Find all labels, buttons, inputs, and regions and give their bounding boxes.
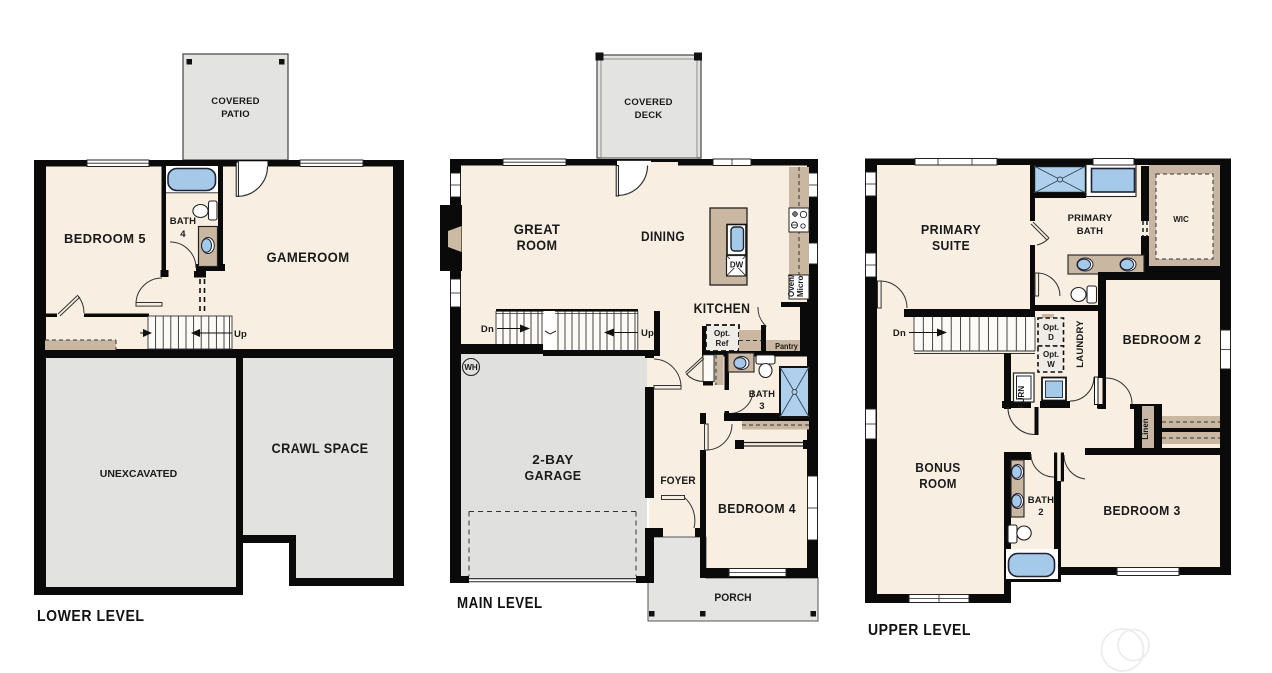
svg-text:BEDROOM 4: BEDROOM 4 [718,502,796,516]
svg-text:PORCH: PORCH [714,592,751,604]
svg-text:UNEXCAVATED: UNEXCAVATED [100,468,178,480]
svg-text:BONUS: BONUS [915,461,960,475]
svg-text:FOYER: FOYER [660,475,695,487]
svg-text:KITCHEN: KITCHEN [694,300,751,316]
svg-text:WIC: WIC [1173,215,1189,224]
svg-text:COVERED: COVERED [211,96,259,107]
svg-text:MAIN LEVEL: MAIN LEVEL [457,595,543,612]
svg-text:BEDROOM 5: BEDROOM 5 [64,232,146,246]
svg-text:BEDROOM 3: BEDROOM 3 [1103,504,1180,518]
svg-text:Oven/: Oven/ [787,274,796,297]
svg-text:LAUNDRY: LAUNDRY [1075,320,1086,368]
svg-text:BATH: BATH [1077,226,1103,237]
svg-text:DECK: DECK [635,110,663,121]
svg-text:SUITE: SUITE [932,239,970,253]
svg-text:DINING: DINING [641,228,685,244]
svg-text:GARAGE: GARAGE [525,469,582,483]
svg-text:BATH: BATH [170,216,196,227]
svg-text:Dn: Dn [893,328,906,339]
svg-text:UPPER LEVEL: UPPER LEVEL [868,622,971,639]
svg-text:ROOM: ROOM [919,477,957,491]
svg-text:4: 4 [180,229,186,240]
svg-text:LOWER LEVEL: LOWER LEVEL [37,608,145,625]
svg-text:BEDROOM 2: BEDROOM 2 [1123,333,1202,347]
svg-text:GREAT: GREAT [514,221,561,237]
svg-text:WH: WH [464,363,478,372]
svg-text:2: 2 [1038,507,1043,518]
svg-text:BATH: BATH [749,389,775,400]
svg-text:GAMEROOM: GAMEROOM [267,249,350,265]
svg-text:W: W [1047,360,1055,369]
svg-text:Ref: Ref [716,339,729,348]
svg-text:DW: DW [730,261,744,270]
svg-text:Up: Up [234,329,247,340]
svg-text:3: 3 [759,401,764,412]
svg-text:2-BAY: 2-BAY [532,453,574,467]
svg-text:COVERED: COVERED [624,97,672,108]
svg-text:D: D [1048,333,1054,342]
svg-text:FURN: FURN [1017,386,1026,408]
svg-text:PRIMARY: PRIMARY [1068,213,1113,224]
svg-text:ROOM: ROOM [517,237,558,253]
svg-text:PATIO: PATIO [221,109,250,120]
svg-text:Dn: Dn [481,324,494,335]
svg-text:Up: Up [641,328,654,339]
svg-text:Opt.: Opt. [714,329,730,338]
svg-text:BATH: BATH [1028,495,1054,506]
svg-text:Opt.: Opt. [1043,350,1059,359]
svg-text:Micro: Micro [796,276,805,297]
svg-text:PRIMARY: PRIMARY [921,223,981,237]
svg-text:Linen: Linen [1141,418,1150,439]
svg-text:CRAWL SPACE: CRAWL SPACE [272,440,369,456]
svg-text:Opt.: Opt. [1043,323,1059,332]
svg-text:Pantry: Pantry [775,342,798,351]
